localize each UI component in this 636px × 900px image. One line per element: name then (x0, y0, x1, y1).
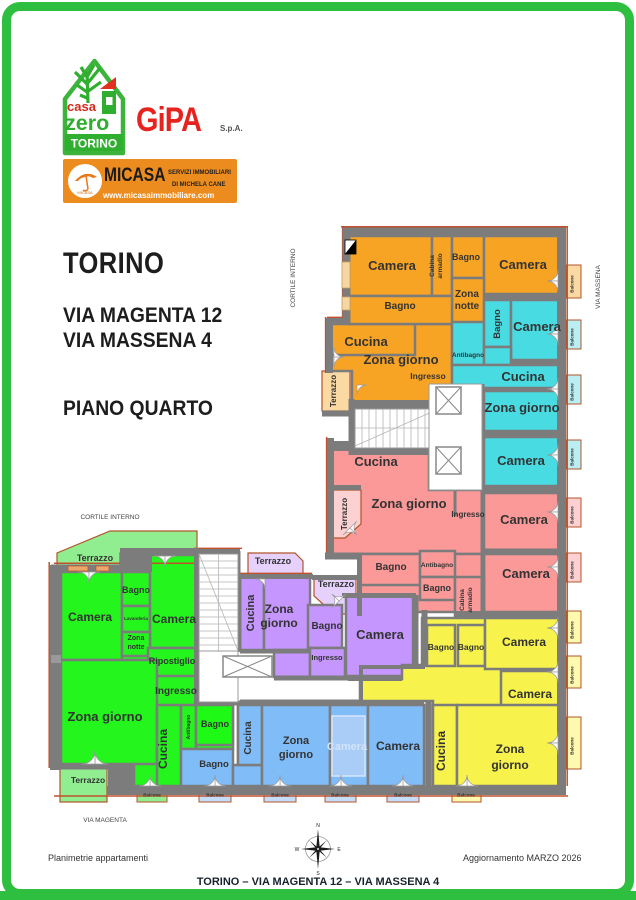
svg-text:Balcone: Balcone (570, 737, 575, 755)
svg-text:Bagno: Bagno (492, 309, 503, 339)
svg-text:VIA MAGENTA: VIA MAGENTA (83, 817, 127, 824)
svg-text:armadio: armadio (437, 253, 444, 278)
svg-text:Cucina: Cucina (245, 594, 257, 632)
svg-text:Cucina: Cucina (354, 454, 398, 469)
svg-text:Ingresso: Ingresso (451, 510, 484, 519)
svg-text:Camera: Camera (368, 258, 416, 273)
svg-text:Zona: Zona (283, 735, 310, 747)
svg-text:Antibagno: Antibagno (421, 562, 453, 569)
svg-text:Antibagno: Antibagno (186, 715, 192, 740)
svg-text:Ingresso: Ingresso (311, 653, 343, 662)
svg-text:Terrazzo: Terrazzo (77, 553, 114, 563)
svg-text:Camera: Camera (497, 453, 545, 468)
svg-text:Antibagno: Antibagno (452, 352, 484, 359)
svg-text:Terrazzo: Terrazzo (255, 556, 292, 566)
svg-text:notte: notte (127, 644, 144, 651)
svg-text:Ingresso: Ingresso (410, 371, 445, 381)
svg-text:Camera: Camera (68, 610, 112, 624)
svg-text:Terrazzo: Terrazzo (329, 375, 338, 407)
svg-text:Zona: Zona (265, 602, 294, 616)
svg-text:VIA MASSENA: VIA MASSENA (595, 264, 602, 308)
svg-text:CORTILE INTERNO: CORTILE INTERNO (80, 514, 139, 521)
svg-text:Balcone: Balcone (570, 621, 575, 639)
svg-text:giorno: giorno (279, 749, 313, 761)
svg-text:Balcone: Balcone (570, 506, 575, 524)
svg-text:Cabina: Cabina (429, 255, 436, 277)
svg-text:Camera: Camera (356, 627, 404, 642)
svg-text:Bagno: Bagno (458, 642, 484, 652)
svg-text:Balcone: Balcone (457, 793, 475, 798)
svg-text:N: N (316, 823, 320, 829)
svg-text:Zona: Zona (455, 289, 479, 300)
svg-text:Camera: Camera (502, 566, 550, 581)
svg-text:Zona: Zona (128, 635, 145, 642)
svg-text:Terrazzo: Terrazzo (318, 579, 355, 589)
svg-text:Lavanderia: Lavanderia (124, 616, 148, 621)
svg-text:Camera: Camera (508, 687, 552, 701)
svg-text:Cucina: Cucina (156, 729, 170, 769)
svg-text:Terrazzo: Terrazzo (71, 775, 105, 785)
svg-text:Balcone: Balcone (570, 275, 575, 293)
svg-text:Camera: Camera (499, 257, 547, 272)
svg-text:W: W (295, 847, 300, 853)
svg-text:Bagno: Bagno (428, 642, 454, 652)
svg-text:Bagno: Bagno (423, 583, 452, 593)
svg-text:giorno: giorno (260, 616, 297, 630)
svg-text:Zona: Zona (496, 742, 525, 756)
svg-text:Balcone: Balcone (570, 328, 575, 346)
svg-text:Cucina: Cucina (344, 334, 388, 349)
svg-text:Bagno: Bagno (199, 759, 229, 770)
svg-text:giorno: giorno (491, 758, 528, 772)
svg-text:Cucina: Cucina (501, 369, 545, 384)
svg-text:Balcone: Balcone (570, 561, 575, 579)
svg-text:Camera: Camera (376, 739, 420, 753)
svg-text:Zona giorno: Zona giorno (363, 352, 438, 367)
svg-text:Balcone: Balcone (206, 793, 224, 798)
svg-text:Cucina: Cucina (243, 721, 254, 755)
svg-text:Camera: Camera (513, 319, 561, 334)
svg-text:Bagno: Bagno (201, 719, 230, 729)
svg-text:Terrazzo: Terrazzo (340, 498, 349, 530)
svg-text:Balcone: Balcone (143, 793, 161, 798)
svg-text:Balcone: Balcone (271, 793, 289, 798)
svg-text:Bagno: Bagno (384, 301, 415, 312)
svg-text:Zona giorno: Zona giorno (371, 496, 446, 511)
svg-text:Camera: Camera (152, 612, 196, 626)
svg-text:Bagno: Bagno (375, 562, 406, 573)
svg-text:Ingresso: Ingresso (155, 686, 197, 697)
svg-text:Balcone: Balcone (570, 666, 575, 684)
svg-text:E: E (337, 847, 341, 853)
svg-text:Bagno: Bagno (311, 621, 342, 632)
svg-text:notte: notte (455, 301, 480, 312)
svg-text:Cucina: Cucina (434, 731, 448, 771)
svg-text:Balcone: Balcone (394, 793, 412, 798)
svg-text:Camera: Camera (502, 635, 546, 649)
svg-text:Zona giorno: Zona giorno (67, 709, 142, 724)
svg-text:Zona giorno: Zona giorno (484, 400, 559, 415)
svg-text:Balcone: Balcone (570, 448, 575, 466)
svg-text:Balcone: Balcone (331, 793, 349, 798)
svg-text:Camera: Camera (500, 512, 548, 527)
svg-text:Bagno: Bagno (122, 585, 151, 595)
svg-text:Balcone: Balcone (570, 383, 575, 401)
svg-text:Bagno: Bagno (452, 252, 481, 262)
svg-text:Cabina: Cabina (459, 589, 466, 611)
svg-text:CORTILE INTERNO: CORTILE INTERNO (290, 248, 297, 307)
svg-text:armadio: armadio (467, 587, 474, 612)
svg-text:Ripostiglio: Ripostiglio (149, 656, 196, 666)
svg-text:Camera: Camera (327, 741, 368, 753)
